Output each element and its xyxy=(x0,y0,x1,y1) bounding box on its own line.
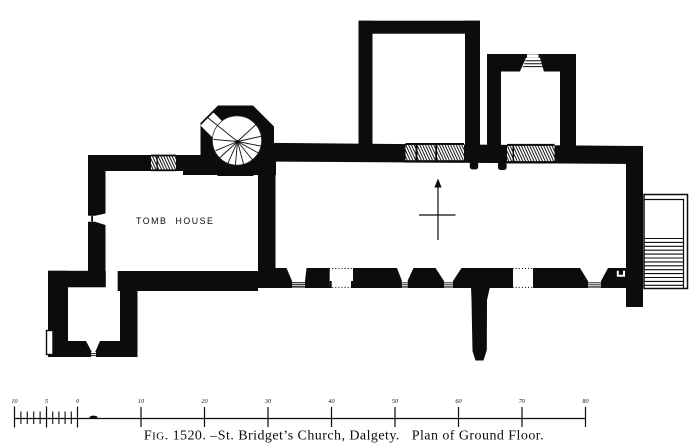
svg-text:10: 10 xyxy=(138,398,145,405)
svg-text:40: 40 xyxy=(328,398,335,405)
svg-text:5: 5 xyxy=(45,398,48,405)
svg-text:FIG. 1520. –St. Bridget’s Chur: FIG. 1520. –St. Bridget’s Church, Dalget… xyxy=(144,429,544,444)
svg-text:50: 50 xyxy=(392,398,399,405)
svg-text:20: 20 xyxy=(201,398,208,405)
svg-text:60: 60 xyxy=(455,398,462,405)
svg-text:TOMB HOUSE: TOMB HOUSE xyxy=(136,216,214,226)
svg-text:80: 80 xyxy=(582,398,589,405)
svg-text:30: 30 xyxy=(264,398,272,405)
svg-text:10: 10 xyxy=(11,398,18,405)
svg-text:70: 70 xyxy=(519,398,526,405)
